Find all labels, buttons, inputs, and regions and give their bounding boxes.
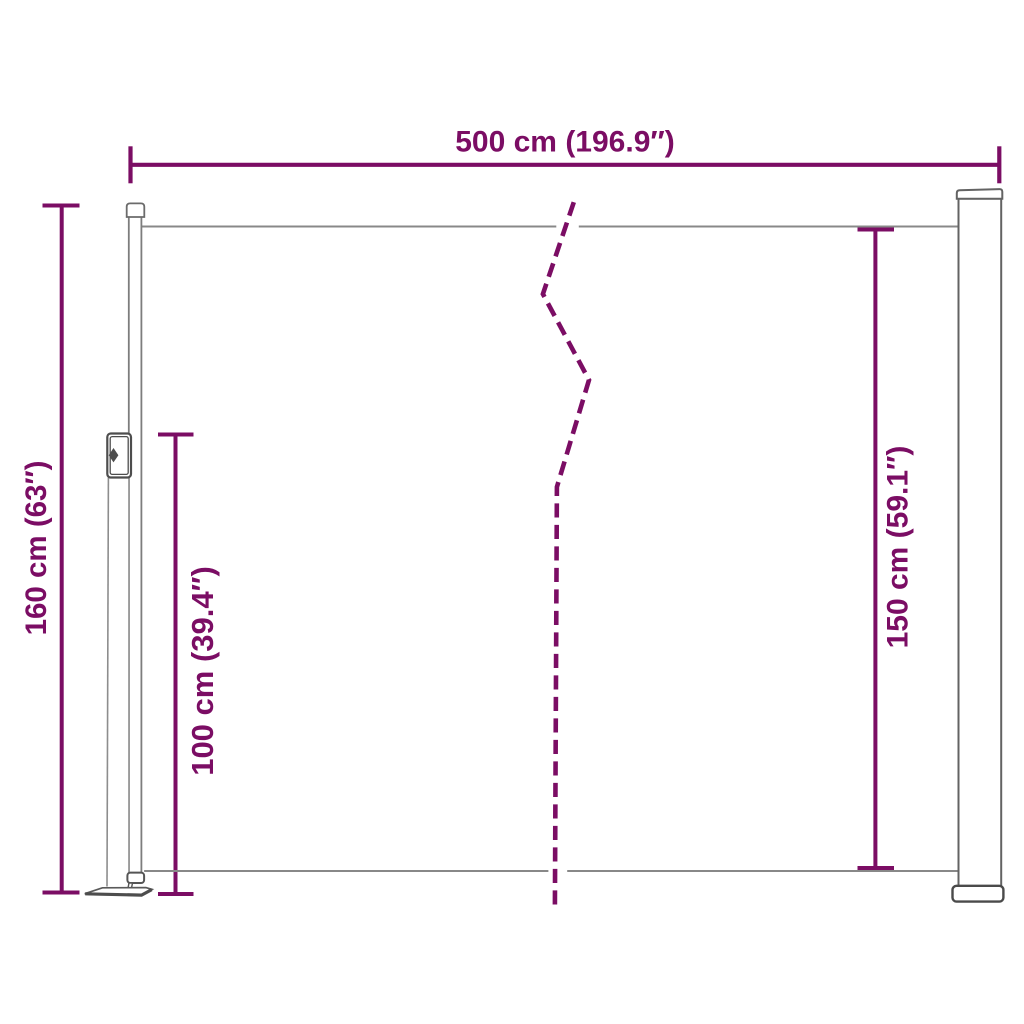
svg-text:150 cm (59.1″): 150 cm (59.1″) bbox=[882, 446, 915, 649]
svg-text:100 cm (39.4″): 100 cm (39.4″) bbox=[185, 566, 220, 776]
svg-text:500 cm (196.9″): 500 cm (196.9″) bbox=[455, 126, 675, 159]
svg-text:160 cm (63″): 160 cm (63″) bbox=[20, 461, 53, 636]
